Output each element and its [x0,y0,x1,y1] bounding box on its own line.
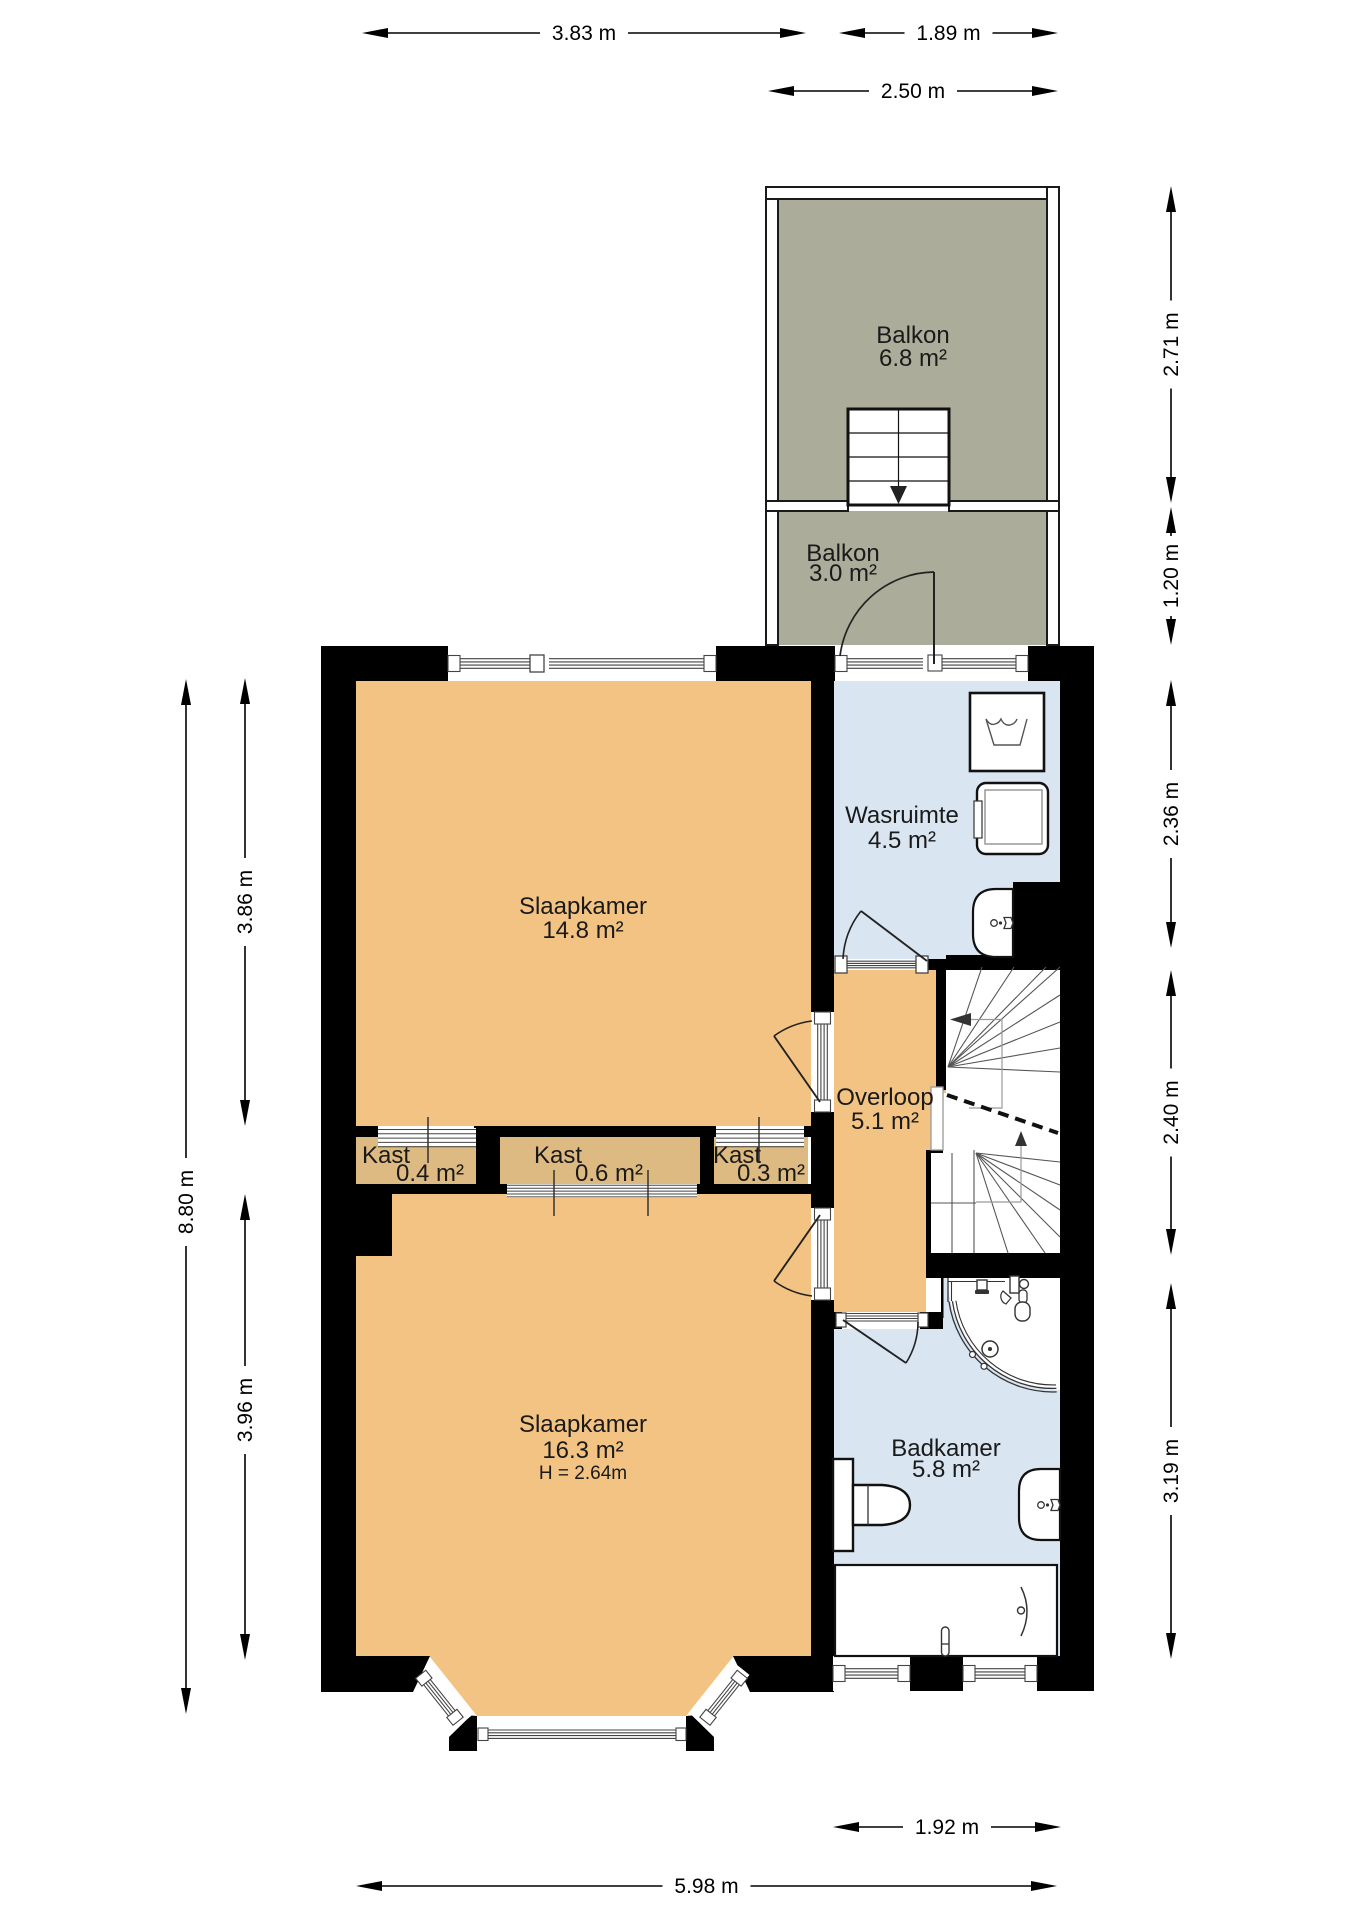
svg-text:4.5 m²: 4.5 m² [868,827,936,854]
svg-text:1.89 m: 1.89 m [916,22,980,45]
svg-text:3.86 m: 3.86 m [234,870,257,934]
svg-text:3.96 m: 3.96 m [234,1378,257,1442]
svg-text:0.3 m²: 0.3 m² [737,1160,805,1187]
svg-text:Wasruimte: Wasruimte [845,802,959,829]
svg-text:1.92 m: 1.92 m [915,1816,979,1839]
svg-text:Overloop: Overloop [836,1084,933,1111]
svg-text:3.0 m²: 3.0 m² [809,560,877,587]
svg-text:3.83 m: 3.83 m [552,22,616,45]
svg-text:5.8 m²: 5.8 m² [912,1456,980,1483]
svg-text:2.71 m: 2.71 m [1160,312,1183,376]
svg-text:0.4 m²: 0.4 m² [396,1160,464,1187]
svg-text:14.8 m²: 14.8 m² [542,917,623,944]
svg-text:2.50 m: 2.50 m [881,80,945,103]
svg-text:1.20 m: 1.20 m [1160,544,1183,608]
svg-text:16.3 m²: 16.3 m² [542,1437,623,1464]
svg-text:2.40 m: 2.40 m [1160,1080,1183,1144]
svg-text:3.19 m: 3.19 m [1160,1439,1183,1503]
svg-text:H = 2.64m: H = 2.64m [539,1463,627,1484]
svg-text:5.1 m²: 5.1 m² [851,1108,919,1135]
svg-text:8.80 m: 8.80 m [175,1170,198,1234]
svg-text:Slaapkamer: Slaapkamer [519,893,647,920]
svg-text:6.8 m²: 6.8 m² [879,345,947,372]
svg-text:5.98 m: 5.98 m [674,1875,738,1898]
svg-text:0.6 m²: 0.6 m² [575,1160,643,1187]
svg-text:2.36 m: 2.36 m [1160,782,1183,846]
svg-text:Slaapkamer: Slaapkamer [519,1411,647,1438]
